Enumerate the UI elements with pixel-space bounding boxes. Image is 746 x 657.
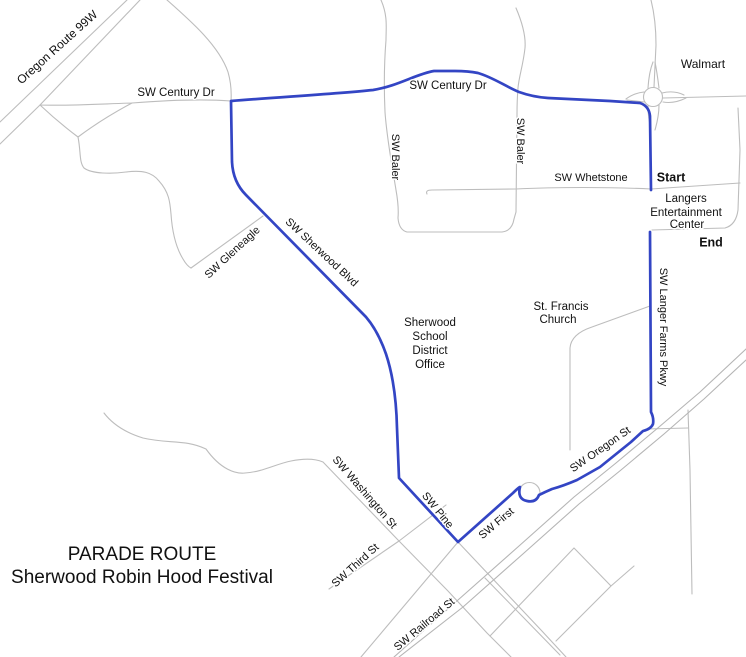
label-sw-railroad-st: SW Railroad St (392, 596, 457, 654)
road-whetstone (427, 188, 651, 195)
label-school-line2: School (412, 331, 447, 343)
label-church-line2: Church (539, 314, 576, 326)
road-wetland-loop (78, 137, 191, 268)
label-sw-langer-farms-pkwy: SW Langer Farms Pkwy (657, 268, 669, 387)
road-old-town-blocks (485, 548, 634, 655)
road-east-vertical (688, 410, 692, 594)
road-sherwood-north (167, 0, 231, 101)
label-sw-third-st: SW Third St (330, 541, 382, 589)
label-sw-washington-st: SW Washington St (330, 454, 399, 531)
label-sw-pine: SW Pine (419, 490, 455, 531)
road-baler-block-bottom (398, 212, 516, 232)
road-century-west (40, 100, 231, 105)
road-crossing-connector (646, 428, 688, 429)
start-marker: Start (657, 170, 686, 184)
label-school-line1: Sherwood (404, 317, 456, 329)
label-sw-whetstone: SW Whetstone (554, 172, 627, 184)
road-ramp (40, 103, 132, 137)
label-walmart: Walmart (681, 57, 726, 71)
label-school-line4: Office (415, 359, 445, 371)
label-sw-century-dr-west: SW Century Dr (137, 87, 214, 99)
road-roundabout-east (663, 96, 746, 98)
label-sw-first: SW First (477, 506, 517, 542)
road-baler-east (516, 8, 525, 212)
railroad-line-b (399, 360, 746, 657)
roundabout-flares (626, 62, 686, 130)
label-sw-century-dr-east: SW Century Dr (409, 80, 486, 92)
map-canvas: Oregon Route 99W SW Century Dr SW Centur… (0, 0, 746, 657)
label-oregon-route-99w: Oregon Route 99W (14, 7, 101, 87)
road-st-francis (570, 306, 650, 450)
label-sw-sherwood-blvd: SW Sherwood Blvd (283, 216, 360, 289)
roundabout-circle (644, 88, 663, 107)
label-langers-line3: Center (670, 219, 705, 231)
place-labels: Walmart Langers Entertainment Center She… (404, 57, 726, 371)
label-langers-line1: Langers (665, 193, 707, 205)
map-title: PARADE ROUTE Sherwood Robin Hood Festiva… (11, 544, 273, 588)
label-sw-baler-east: SW Baler (514, 118, 526, 165)
road-baler-west (381, 0, 398, 218)
label-sw-baler-west: SW Baler (389, 134, 401, 181)
loop-circle-arc (519, 483, 540, 494)
parade-route-path (231, 71, 653, 542)
label-langers-line2: Entertainment (650, 207, 722, 219)
parade-route (231, 71, 653, 542)
end-marker: End (699, 235, 723, 249)
title-line2: Sherwood Robin Hood Festival (11, 567, 273, 588)
label-school-line3: District (412, 345, 448, 357)
parade-route-map: Oregon Route 99W SW Century Dr SW Centur… (0, 0, 746, 657)
label-church-line1: St. Francis (534, 301, 589, 313)
title-line1: PARADE ROUTE (68, 544, 217, 565)
road-roundabout-north (651, 0, 656, 87)
road-pine-extension (458, 542, 566, 657)
